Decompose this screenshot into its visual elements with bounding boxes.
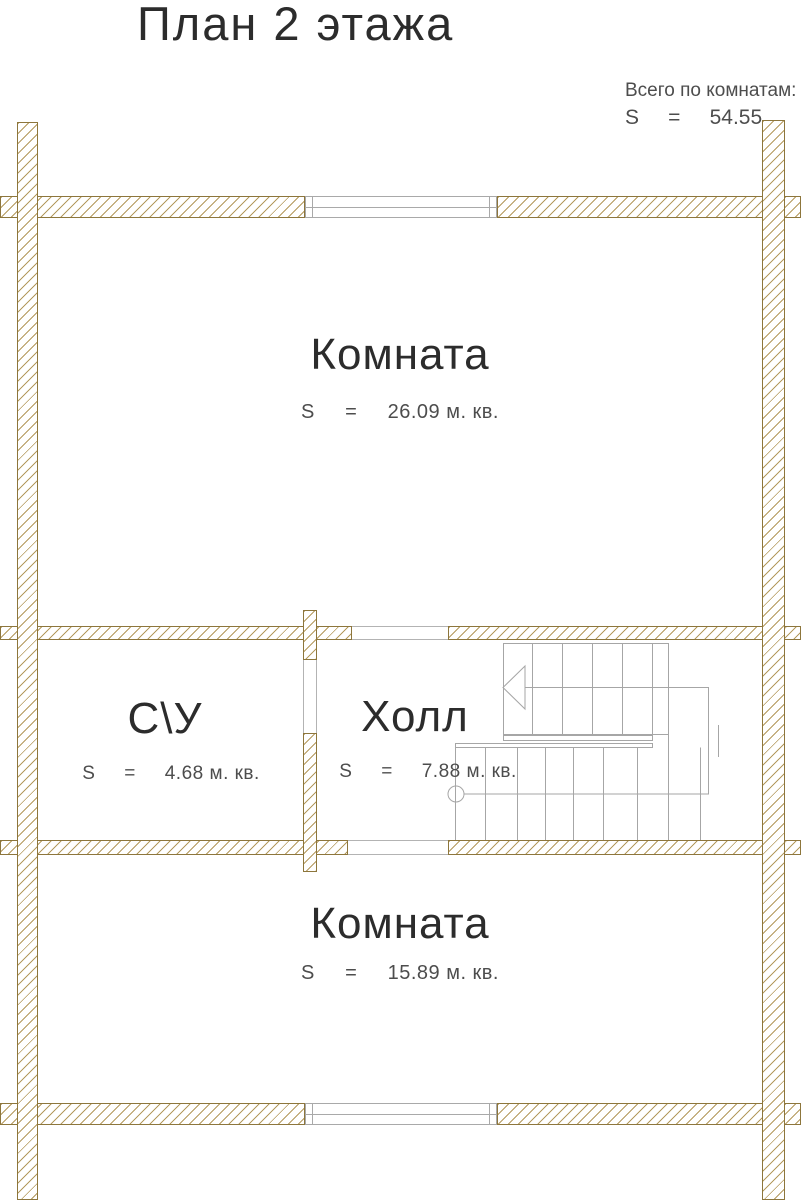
- wall-bottom-right: [497, 1103, 801, 1125]
- page-title: План 2 этажа: [137, 0, 454, 48]
- room-area-hall: S = 7.88 м. кв.: [303, 760, 553, 784]
- wall-left-vertical: [17, 122, 38, 1200]
- wall-right-vertical: [762, 120, 785, 1200]
- room-name-upper: Комната: [250, 332, 550, 378]
- wall-lowermid-left: [0, 840, 348, 855]
- room-area-su: S = 4.68 м. кв.: [46, 762, 296, 786]
- totals-value: S = 54.55: [625, 106, 796, 130]
- stair-landing-edge: [456, 744, 653, 748]
- wall-su-divider-lower: [303, 733, 317, 872]
- room-name-su: С\У: [40, 696, 290, 742]
- wall-su-divider-upper: [303, 610, 317, 660]
- wall-top-left: [0, 196, 305, 218]
- wall-bottom-left: [0, 1103, 305, 1125]
- window-frame-cap: [312, 197, 313, 217]
- window-top: [305, 196, 497, 218]
- staircase: [440, 636, 730, 846]
- window-bottom: [305, 1103, 497, 1125]
- totals-label: Всего по комнатам:: [625, 80, 796, 102]
- window-frame-cap: [489, 197, 490, 217]
- door-opening-hall-upper-room: [352, 626, 448, 640]
- window-glass-line: [306, 1114, 496, 1115]
- window-frame-cap: [312, 1104, 313, 1124]
- room-area-lower: S = 15.89 м. кв.: [250, 961, 550, 985]
- room-area-upper: S = 26.09 м. кв.: [250, 400, 550, 424]
- window-glass-line: [306, 207, 496, 208]
- room-name-hall: Холл: [290, 694, 540, 740]
- door-opening-hall-lower-room: [348, 840, 448, 855]
- room-name-lower: Комната: [250, 901, 550, 947]
- window-frame-cap: [489, 1104, 490, 1124]
- wall-top-right: [497, 196, 801, 218]
- wall-middle-left: [0, 626, 352, 640]
- floor-plan: План 2 этажа Всего по комнатам: S = 54.5…: [0, 0, 801, 1200]
- totals-block: Всего по комнатам: S = 54.55: [625, 80, 796, 130]
